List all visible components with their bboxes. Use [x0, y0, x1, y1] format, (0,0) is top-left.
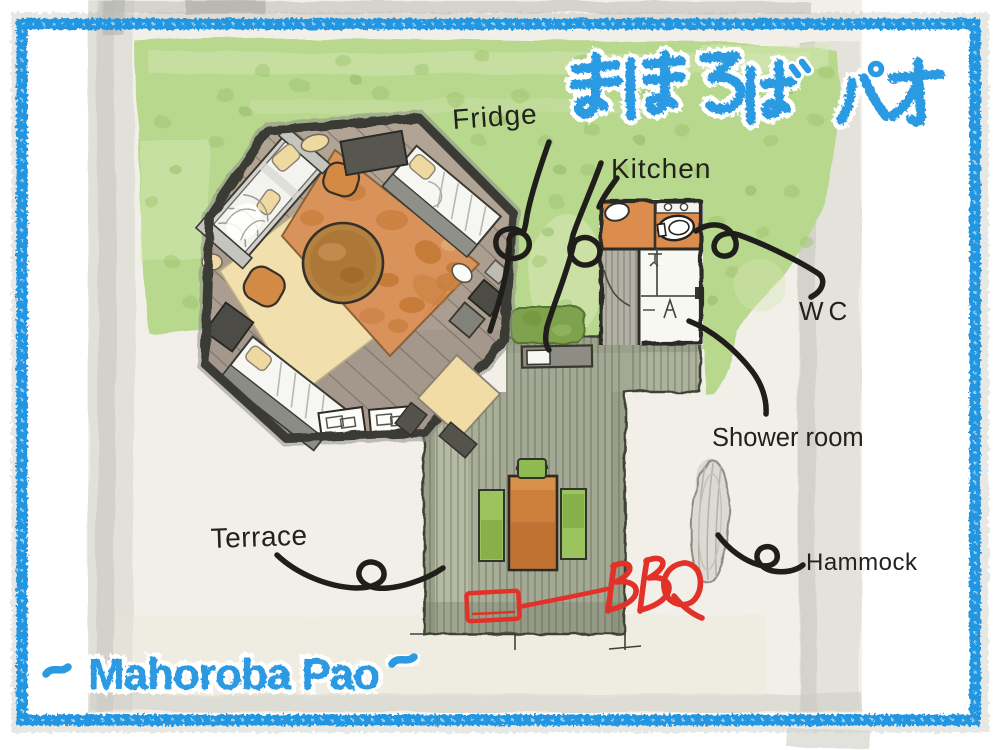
svg-text:Shower room: Shower room [712, 424, 864, 452]
svg-text:Mahoroba Pao: Mahoroba Pao [88, 650, 379, 699]
svg-text:Kitchen: Kitchen [611, 153, 711, 184]
svg-text:WC: WC [799, 296, 852, 326]
svg-text:Fridge: Fridge [451, 98, 538, 135]
svg-text:Hammock: Hammock [806, 549, 918, 576]
svg-text:Terrace: Terrace [210, 520, 308, 554]
